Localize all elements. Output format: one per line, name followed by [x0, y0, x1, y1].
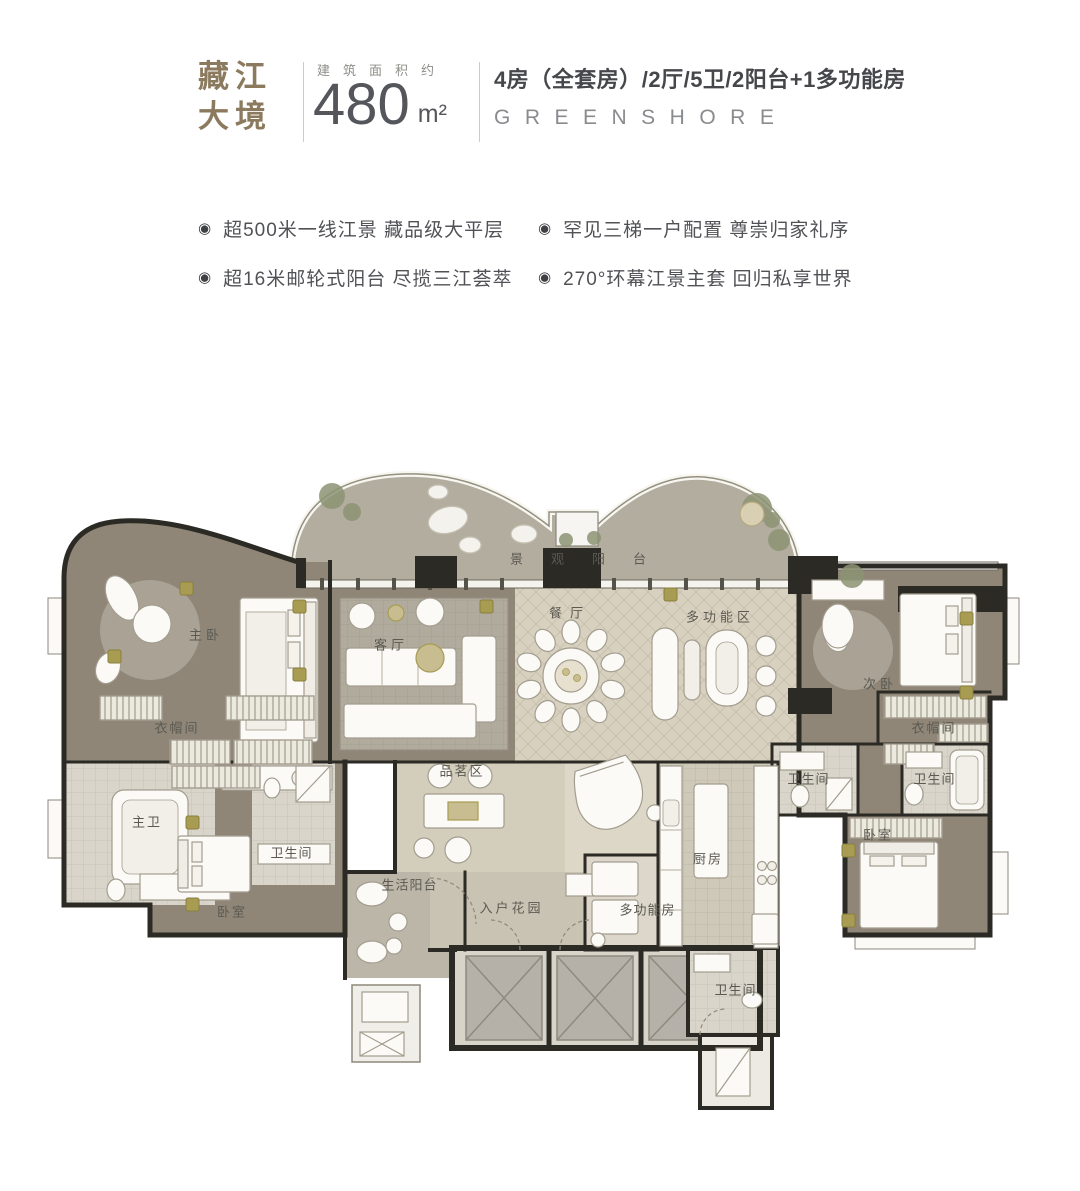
- highlight-bullet-icon: ◉: [198, 270, 211, 285]
- room-label: 主卫: [132, 812, 162, 831]
- side-table: [388, 605, 404, 621]
- room-label: 卫生间: [714, 980, 756, 999]
- second-bed: [900, 594, 976, 686]
- room-label: 多功能房: [619, 900, 675, 919]
- highlight-bullet-icon: ◉: [198, 221, 211, 236]
- stairs: [716, 1048, 750, 1096]
- coffee-table: [416, 644, 444, 672]
- room-label: 入户花园: [479, 898, 543, 917]
- highlight-bullet-icon: ◉: [538, 270, 551, 285]
- room-label: 餐厅: [549, 603, 591, 622]
- room-label: 客厅: [374, 635, 408, 654]
- flyer-page: 藏江 大境 建筑面积约 480 m² 4房（全套房）/2厅/5卫/2阳台+1多功…: [0, 0, 1080, 1191]
- brand-line2: 大境: [198, 97, 308, 137]
- room-label: 卫生间: [913, 769, 955, 788]
- room-label: 主卧: [189, 625, 223, 644]
- room-label: 厨房: [693, 849, 723, 868]
- room-label: 卧室: [217, 902, 247, 921]
- room-label: 衣帽间: [911, 718, 956, 737]
- master-table: [133, 605, 171, 643]
- room-label: 生活阳台: [381, 875, 437, 894]
- armchair: [349, 603, 375, 629]
- highlight-text: 罕见三梯一户配置 尊崇归家礼序: [563, 215, 849, 242]
- brand-line1: 藏江: [198, 57, 308, 97]
- highlight-item-1: ◉超500米一线江景 藏品级大平层: [198, 215, 538, 242]
- room-label: 卧室: [863, 825, 893, 844]
- bay-window-right-bottom: [990, 852, 1008, 914]
- highlight-bullet-icon: ◉: [538, 221, 551, 236]
- area-row: 480 m²: [313, 74, 447, 136]
- room-label: 次卧: [863, 674, 897, 693]
- room-label: 卫生间: [270, 843, 312, 862]
- area-value: 480: [313, 74, 410, 136]
- tv-cabinet: [344, 704, 476, 738]
- highlight-text: 270°环幕江景主套 回归私享世界: [563, 264, 853, 291]
- room-label: 多功能区: [686, 607, 754, 626]
- room-label: 景观阳台: [510, 549, 674, 568]
- right-tub: [822, 604, 854, 648]
- highlight-list: ◉超500米一线江景 藏品级大平层◉罕见三梯一户配置 尊崇归家礼序◉超16米邮轮…: [198, 215, 888, 291]
- area-unit: m²: [418, 100, 447, 136]
- floorplan: 景观阳台主卧客厅餐厅多功能区次卧衣帽间衣帽间主卫卫生间卫生间卫生间卧室卧室品茗区…: [40, 430, 1040, 1130]
- floorplan-svg: [40, 430, 1040, 1130]
- highlight-text: 超16米邮轮式阳台 尽揽三江荟萃: [223, 264, 512, 291]
- layout-description: 4房（全套房）/2厅/5卫/2阳台+1多功能房: [494, 62, 906, 94]
- room-label: 衣帽间: [154, 718, 199, 737]
- planter-pot: [740, 502, 764, 526]
- english-name: GREENSHORE: [494, 106, 788, 130]
- room-label: 品茗区: [439, 761, 484, 780]
- room-label: 卫生间: [787, 769, 829, 788]
- highlight-item-4: ◉270°环幕江景主套 回归私享世界: [538, 264, 888, 291]
- brand-title: 藏江 大境: [198, 57, 308, 137]
- highlight-text: 超500米一线江景 藏品级大平层: [223, 215, 504, 242]
- header-divider-left: [303, 62, 304, 142]
- highlight-item-3: ◉超16米邮轮式阳台 尽揽三江荟萃: [198, 264, 538, 291]
- armchair: [416, 598, 444, 626]
- highlight-item-2: ◉罕见三梯一户配置 尊崇归家礼序: [538, 215, 888, 242]
- header-divider-right: [479, 62, 480, 142]
